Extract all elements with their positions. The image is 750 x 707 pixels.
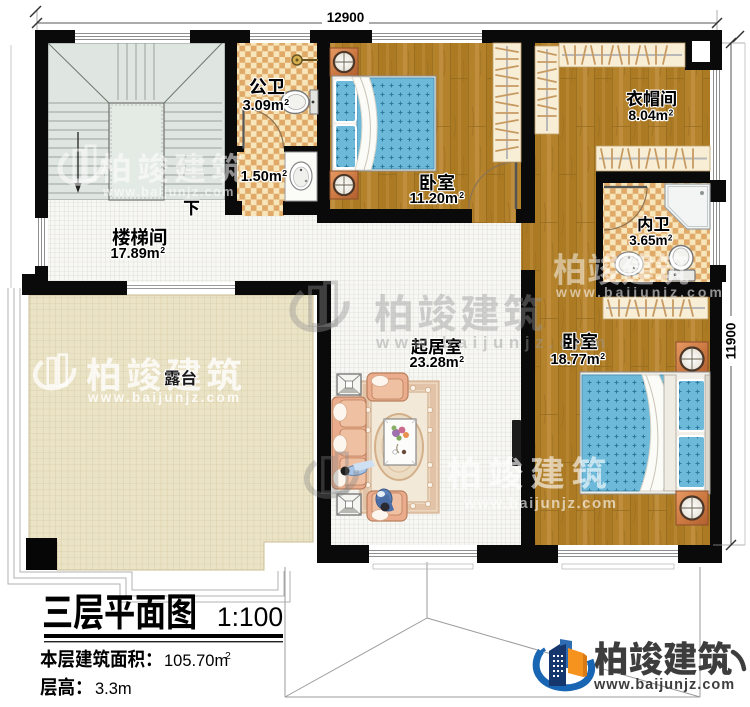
svg-text:2: 2 <box>668 234 673 243</box>
svg-text:3.3m: 3.3m <box>95 680 132 698</box>
svg-text:2: 2 <box>459 354 464 364</box>
svg-text:2: 2 <box>225 650 231 662</box>
svg-text:11900: 11900 <box>724 323 739 360</box>
svg-text:2: 2 <box>459 190 464 200</box>
svg-text:3.09m: 3.09m <box>243 98 284 114</box>
svg-text:www.baijunjz.com: www.baijunjz.com <box>463 495 617 512</box>
svg-text:3.65m: 3.65m <box>629 233 667 248</box>
svg-text:1.50m: 1.50m <box>241 169 282 185</box>
svg-text:www.baijunjz.com: www.baijunjz.com <box>555 284 725 300</box>
svg-text:1:100: 1:100 <box>217 602 283 632</box>
svg-text:www.baijunjz.com: www.baijunjz.com <box>87 390 241 405</box>
svg-text:11.20m: 11.20m <box>410 191 458 207</box>
svg-text:www.baijunjz.com: www.baijunjz.com <box>375 333 611 352</box>
svg-text:www.baijunjz.com: www.baijunjz.com <box>102 185 235 199</box>
svg-text:17.89m: 17.89m <box>111 246 160 262</box>
svg-text:8.04m: 8.04m <box>628 107 668 123</box>
svg-text:12900: 12900 <box>327 10 365 25</box>
svg-text:www.baijunjz.com: www.baijunjz.com <box>593 677 735 693</box>
svg-text:2: 2 <box>600 351 605 361</box>
svg-text:105.70m: 105.70m <box>164 652 228 670</box>
svg-text:2: 2 <box>669 107 674 117</box>
svg-text:23.28m: 23.28m <box>410 355 459 371</box>
svg-text:2: 2 <box>282 168 287 178</box>
svg-text:2: 2 <box>160 245 165 255</box>
svg-text:2: 2 <box>284 97 289 107</box>
svg-text:18.77m: 18.77m <box>551 352 600 368</box>
